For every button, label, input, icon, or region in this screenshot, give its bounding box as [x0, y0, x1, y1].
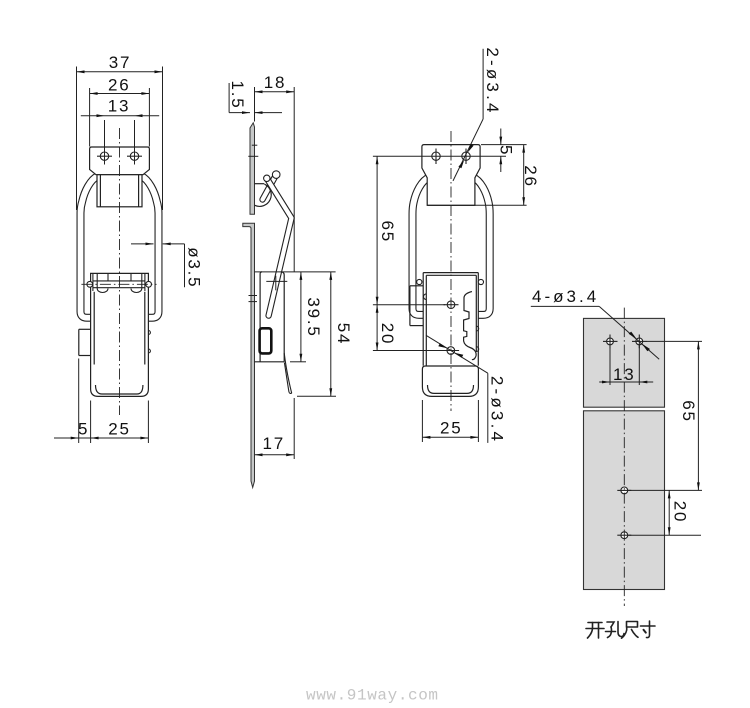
svg-text:37: 37: [109, 53, 132, 72]
svg-text:65: 65: [679, 400, 698, 423]
svg-text:4-ø3.4: 4-ø3.4: [532, 287, 599, 306]
svg-text:54: 54: [334, 323, 353, 346]
svg-text:26: 26: [108, 76, 131, 95]
svg-text:www.91way.com: www.91way.com: [306, 687, 439, 705]
svg-text:5: 5: [496, 145, 515, 156]
svg-text:5: 5: [78, 420, 89, 439]
svg-text:39.5: 39.5: [304, 297, 323, 337]
svg-text:25: 25: [108, 420, 131, 439]
svg-text:2-ø3.4: 2-ø3.4: [483, 47, 502, 115]
svg-text:17: 17: [263, 434, 286, 453]
svg-text:20: 20: [378, 323, 397, 346]
svg-text:13: 13: [613, 365, 636, 384]
svg-text:20: 20: [670, 501, 689, 524]
svg-text:26: 26: [521, 165, 540, 188]
svg-text:1.5: 1.5: [228, 80, 247, 109]
svg-text:65: 65: [378, 220, 397, 243]
svg-text:2-ø3.4: 2-ø3.4: [487, 376, 506, 444]
svg-text:18: 18: [264, 73, 287, 92]
svg-text:13: 13: [108, 97, 131, 116]
svg-text:ø3.5: ø3.5: [185, 247, 204, 288]
svg-text:25: 25: [440, 419, 463, 438]
